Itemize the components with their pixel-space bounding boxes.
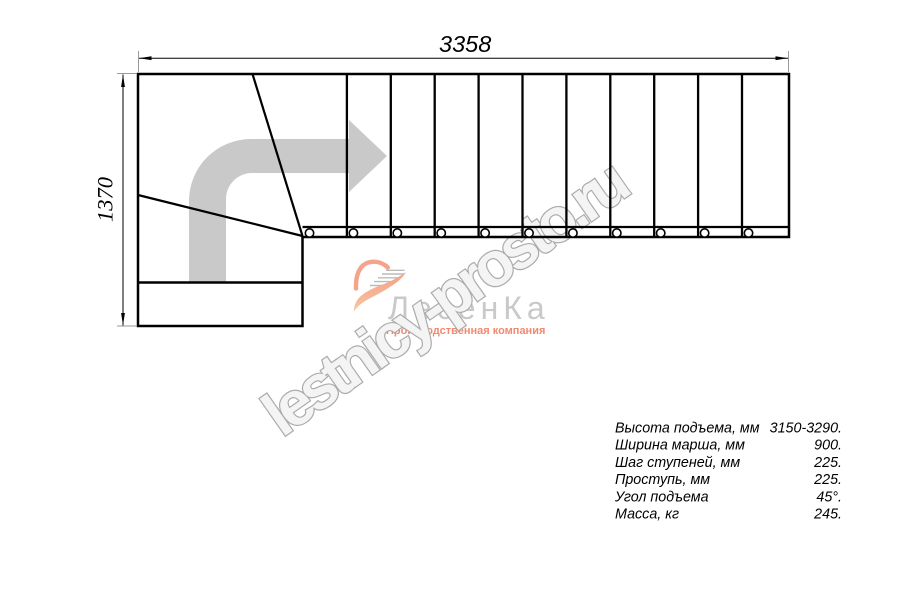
svg-text:900.: 900. <box>814 438 842 454</box>
svg-text:Угол подъема: Угол подъема <box>614 489 709 505</box>
svg-text:3150-3290.: 3150-3290. <box>770 421 842 437</box>
svg-text:45°.: 45°. <box>816 489 842 505</box>
svg-text:Шаг ступеней, мм: Шаг ступеней, мм <box>615 455 740 471</box>
svg-text:3358: 3358 <box>439 31 491 57</box>
svg-text:Масса, кг: Масса, кг <box>615 507 679 523</box>
svg-text:Проступь, мм: Проступь, мм <box>615 472 710 488</box>
svg-text:225.: 225. <box>813 455 842 471</box>
svg-text:225.: 225. <box>813 472 842 488</box>
svg-text:Ширина марша, мм: Ширина марша, мм <box>615 438 745 454</box>
svg-text:Высота подъема, мм: Высота подъема, мм <box>615 421 760 437</box>
svg-text:245.: 245. <box>813 507 842 523</box>
svg-text:1370: 1370 <box>93 177 118 222</box>
